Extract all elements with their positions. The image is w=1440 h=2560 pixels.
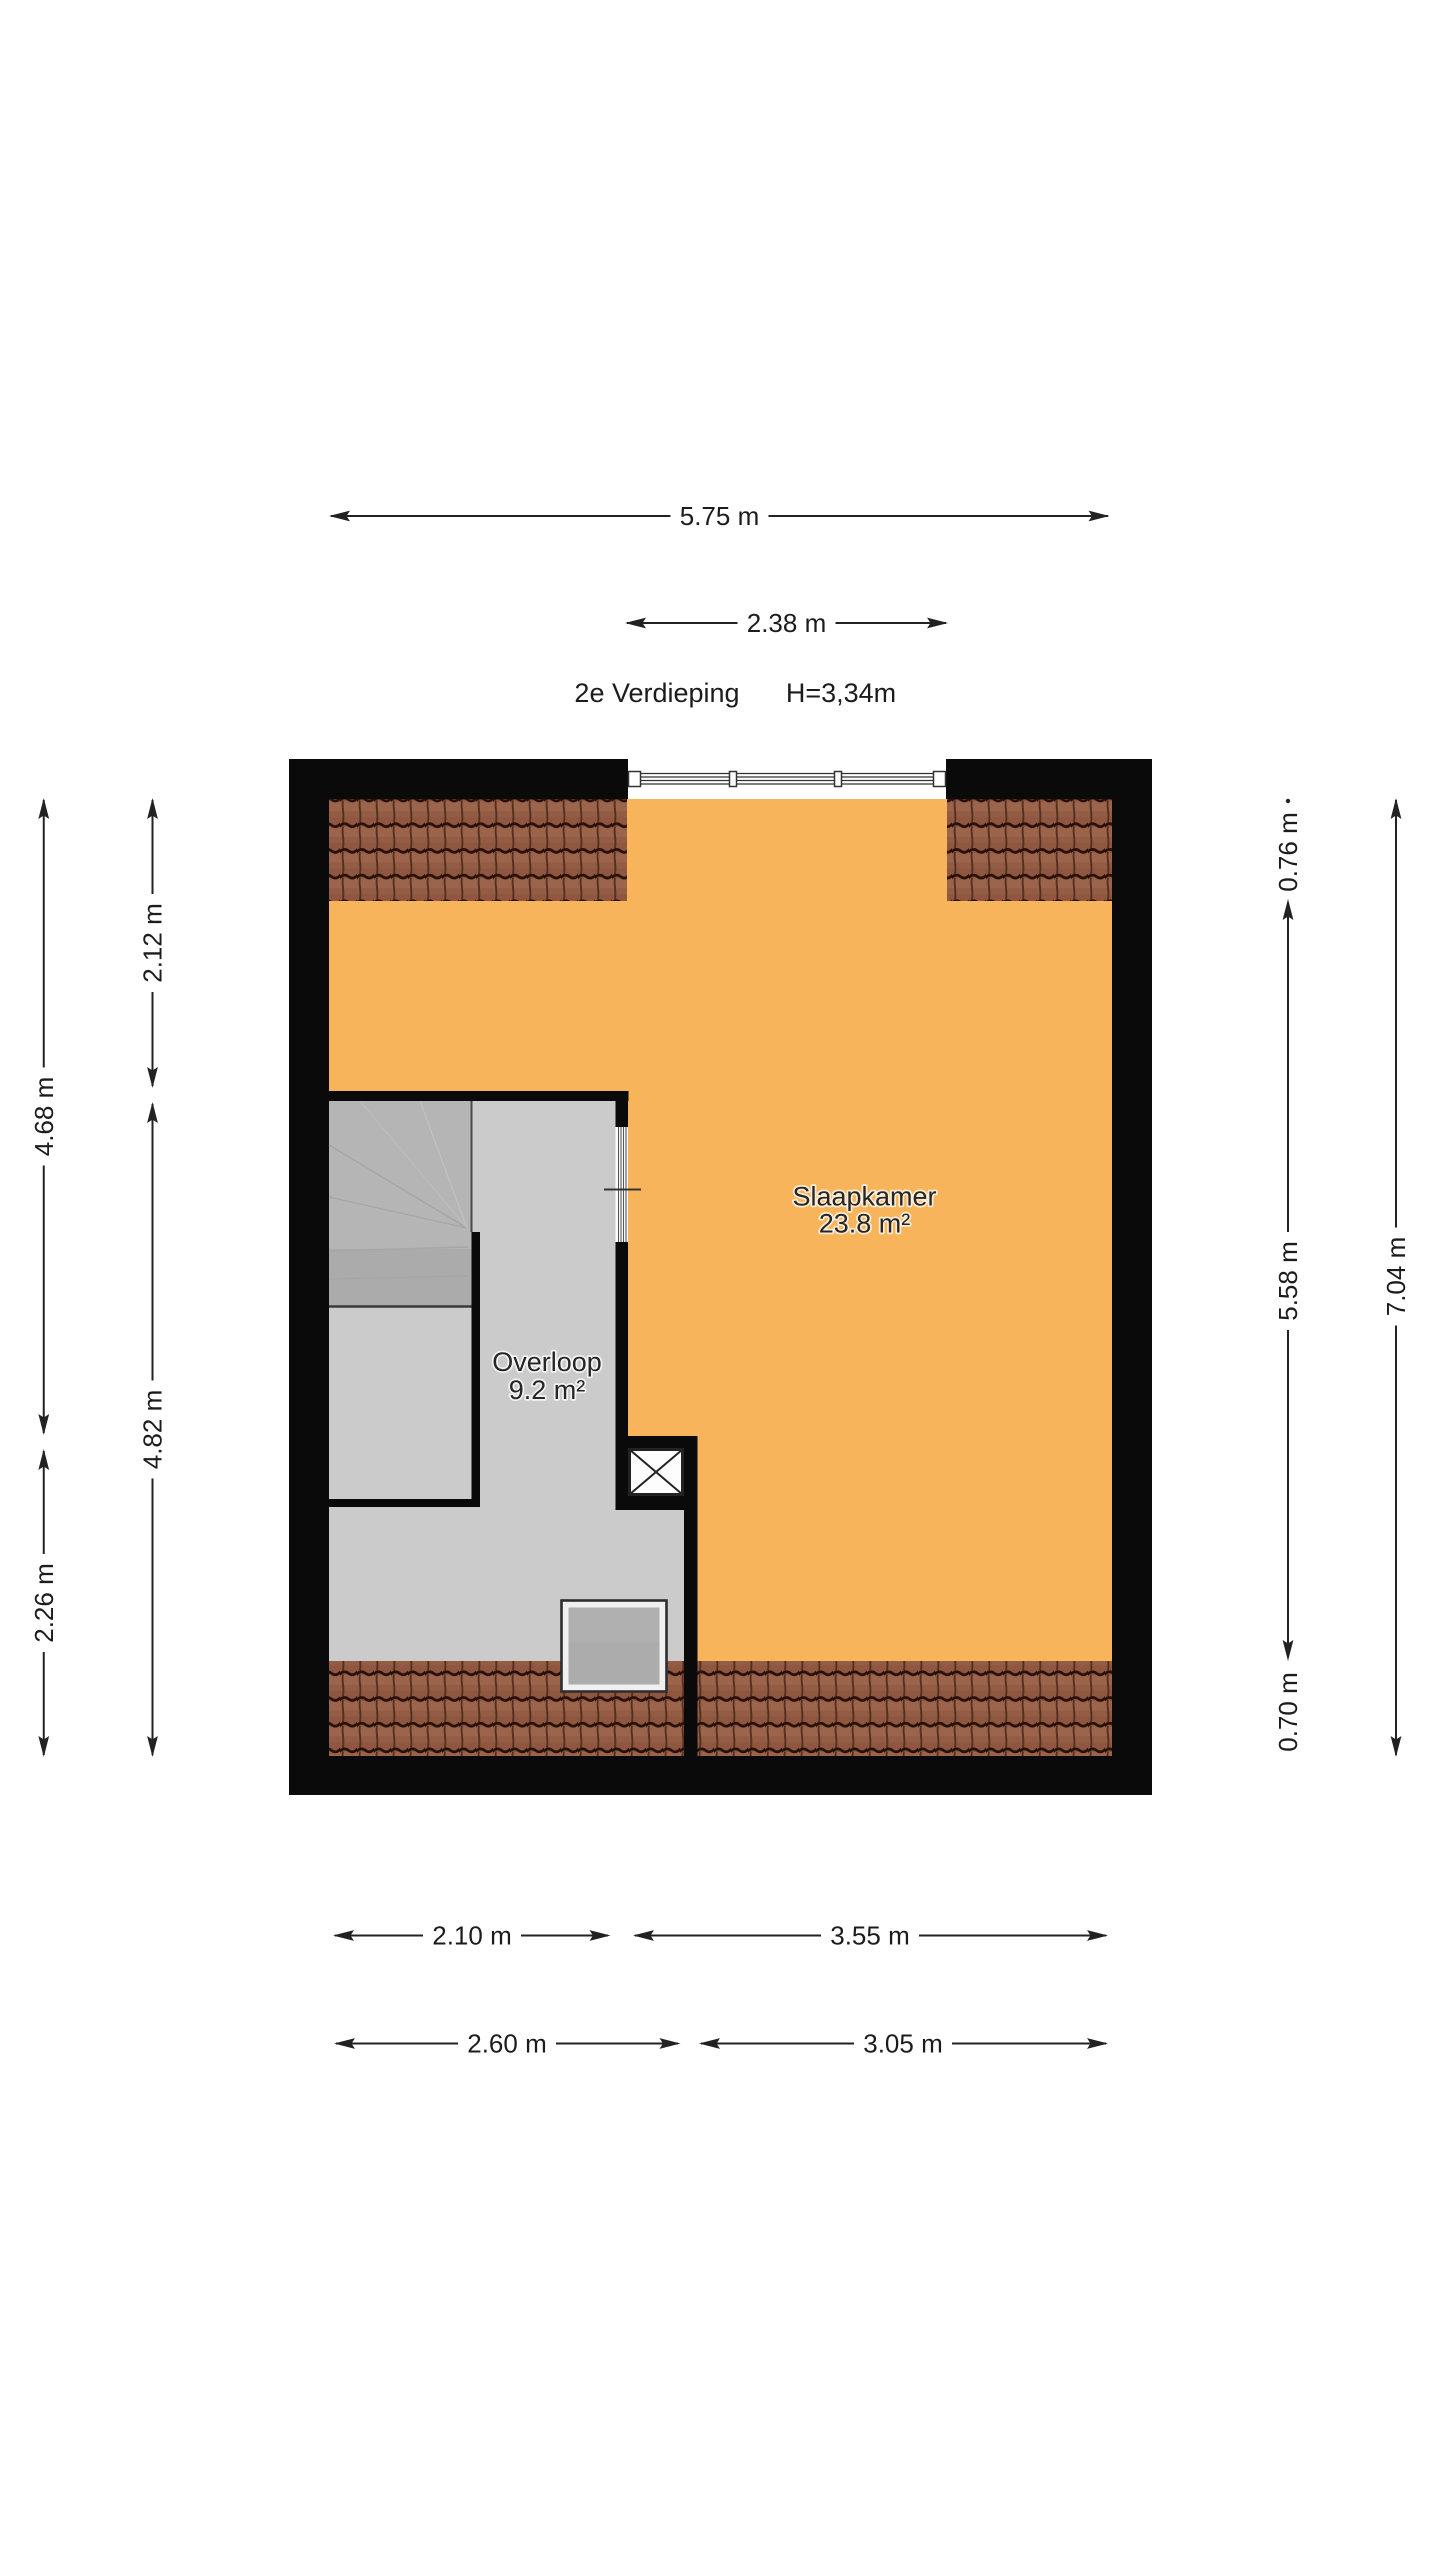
svg-text:5.75 m: 5.75 m bbox=[680, 501, 760, 531]
svg-text:2.12 m: 2.12 m bbox=[138, 903, 168, 983]
svg-text:H=3,34m: H=3,34m bbox=[786, 678, 896, 708]
svg-text:2.60 m: 2.60 m bbox=[467, 2029, 547, 2059]
svg-text:Overloop: Overloop bbox=[492, 1347, 602, 1377]
svg-text:9.2 m²: 9.2 m² bbox=[509, 1375, 586, 1405]
svg-text:5.58 m: 5.58 m bbox=[1273, 1241, 1303, 1321]
svg-text:7.04 m: 7.04 m bbox=[1381, 1237, 1411, 1317]
svg-text:4.82 m: 4.82 m bbox=[138, 1390, 168, 1470]
svg-text:Slaapkamer: Slaapkamer bbox=[792, 1182, 936, 1212]
svg-text:2.10 m: 2.10 m bbox=[432, 1921, 512, 1951]
svg-text:0.76 m: 0.76 m bbox=[1273, 812, 1303, 892]
svg-text:2.26 m: 2.26 m bbox=[29, 1563, 59, 1643]
svg-text:3.55 m: 3.55 m bbox=[830, 1921, 910, 1951]
svg-text:4.68 m: 4.68 m bbox=[29, 1077, 59, 1157]
svg-text:23.8 m²: 23.8 m² bbox=[819, 1209, 911, 1239]
svg-text:2e Verdieping: 2e Verdieping bbox=[574, 678, 739, 708]
svg-text:2.38 m: 2.38 m bbox=[747, 608, 827, 638]
svg-text:3.05 m: 3.05 m bbox=[863, 2029, 943, 2059]
svg-text:0.70 m: 0.70 m bbox=[1273, 1672, 1303, 1752]
